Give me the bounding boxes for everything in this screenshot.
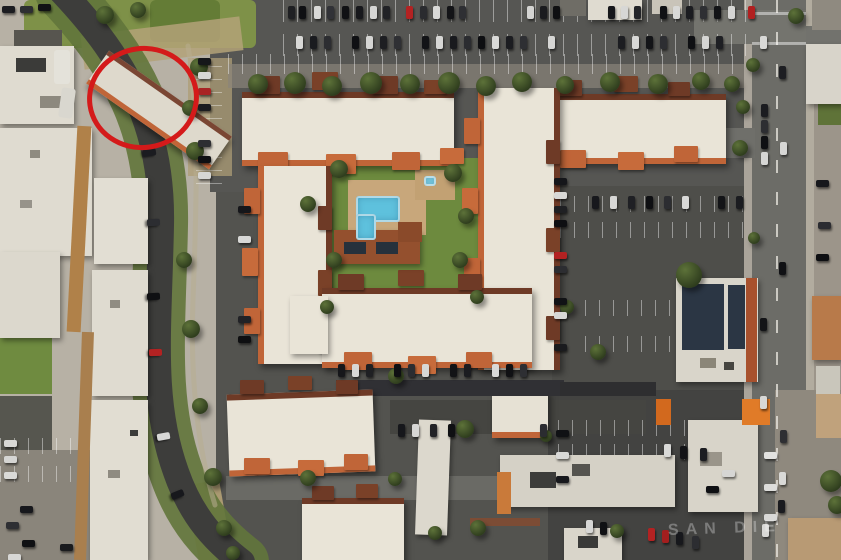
parked-car — [198, 58, 211, 65]
parked-car — [20, 506, 33, 513]
parked-car — [527, 6, 534, 19]
clubhouse-solar-panel — [376, 242, 398, 254]
parked-car — [366, 364, 373, 377]
parked-car — [682, 196, 689, 209]
tile-wing — [546, 140, 560, 164]
parked-car — [448, 424, 455, 437]
parked-car — [556, 430, 569, 437]
rooftop-vent — [30, 150, 40, 158]
tree — [692, 72, 710, 90]
tree — [444, 164, 462, 182]
tree — [556, 76, 574, 94]
parked-car — [314, 6, 321, 19]
parked-car — [20, 6, 33, 13]
parked-car — [383, 6, 390, 19]
parked-car — [761, 120, 768, 133]
parked-car — [492, 364, 499, 377]
parked-car — [198, 156, 211, 163]
tree — [746, 58, 760, 72]
parked-car — [406, 6, 413, 19]
parked-car — [398, 424, 405, 437]
parked-car — [430, 424, 437, 437]
parked-car — [506, 36, 513, 49]
building-far-right-top — [806, 44, 841, 104]
tree — [452, 252, 468, 268]
commercial-building-strip-lower — [90, 400, 148, 560]
parked-car — [198, 172, 211, 179]
tree — [388, 472, 402, 486]
parked-car — [780, 142, 787, 155]
parked-car — [540, 424, 547, 437]
parked-car — [722, 470, 735, 477]
parked-car — [553, 6, 560, 19]
parked-car — [299, 6, 306, 19]
parked-car — [296, 36, 303, 49]
parked-car — [761, 152, 768, 165]
tree — [676, 262, 702, 288]
parking-stalls-row3 — [228, 54, 744, 74]
tree — [438, 72, 460, 94]
parked-car — [4, 440, 17, 447]
parked-car — [818, 222, 831, 229]
tree — [820, 470, 841, 492]
parked-car — [288, 6, 295, 19]
parked-car — [780, 430, 787, 443]
parked-car — [816, 180, 829, 187]
parked-car — [422, 36, 429, 49]
building-far-right-corner — [812, 0, 841, 30]
tree — [590, 344, 606, 360]
aerial-photo: SAN DIE — [0, 0, 841, 560]
parked-car — [760, 396, 767, 409]
rooftop-unit — [578, 536, 598, 548]
parked-car — [554, 312, 567, 319]
parked-car — [60, 544, 73, 551]
parked-car — [779, 472, 786, 485]
parked-car — [554, 178, 567, 185]
parked-car — [554, 344, 567, 351]
tile-wing — [546, 228, 560, 252]
tile-wing — [344, 454, 368, 470]
parked-car — [338, 364, 345, 377]
tree — [456, 420, 474, 438]
tree — [182, 320, 200, 338]
tree — [300, 470, 316, 486]
solar-array-column — [728, 285, 745, 349]
rooftop-vent — [20, 200, 32, 208]
parked-car — [370, 6, 377, 19]
tree — [322, 76, 342, 96]
parked-car — [586, 520, 593, 533]
tree — [216, 520, 232, 536]
parked-car — [736, 196, 743, 209]
parked-car — [646, 36, 653, 49]
parked-car — [408, 364, 415, 377]
house-far-right-mid — [812, 296, 841, 360]
tile-wing — [338, 274, 364, 290]
tree — [458, 208, 474, 224]
street-center-dashes — [776, 0, 778, 560]
parked-car — [728, 6, 735, 19]
parked-car — [554, 206, 567, 213]
tree — [176, 252, 192, 268]
parked-car — [478, 36, 485, 49]
parked-car — [621, 6, 628, 19]
parked-car — [6, 522, 19, 529]
orange-tile-strip-bottom — [497, 472, 511, 514]
parked-car — [688, 36, 695, 49]
parked-car — [352, 36, 359, 49]
rooftop-vent — [130, 430, 138, 436]
parked-car — [610, 196, 617, 209]
rooftop-vent — [110, 300, 120, 308]
tile-wing — [392, 152, 420, 170]
tree — [360, 72, 382, 94]
building-far-right-bottom — [788, 518, 841, 560]
parked-car — [556, 452, 569, 459]
tree — [96, 6, 114, 24]
parked-car — [673, 6, 680, 19]
tile-wing — [336, 380, 358, 394]
parked-car — [680, 446, 687, 459]
parked-car — [592, 196, 599, 209]
rooftop-unit — [724, 362, 734, 370]
parked-car — [433, 6, 440, 19]
house-far-right-small — [816, 366, 840, 394]
parked-car — [554, 192, 567, 199]
parked-car — [718, 196, 725, 209]
parked-car — [716, 36, 723, 49]
parked-car — [714, 6, 721, 19]
parked-car — [450, 36, 457, 49]
parked-car — [464, 36, 471, 49]
parked-car — [554, 220, 567, 227]
parked-car — [342, 6, 349, 19]
rooftop-unit — [572, 464, 590, 476]
tree — [400, 74, 420, 94]
parked-car — [761, 104, 768, 117]
parked-car — [412, 424, 419, 437]
parked-car — [198, 72, 211, 79]
parked-car — [760, 318, 767, 331]
parked-car — [628, 196, 635, 209]
parked-car — [310, 36, 317, 49]
tree — [204, 468, 222, 486]
tree — [476, 76, 496, 96]
rooftop-unit — [700, 358, 716, 368]
parked-car — [664, 196, 671, 209]
parked-car — [648, 528, 655, 541]
tree — [284, 72, 306, 94]
tile-wing — [288, 376, 312, 390]
tree — [226, 546, 240, 560]
parked-car — [660, 6, 667, 19]
tile-wing — [398, 270, 424, 286]
parked-car — [556, 476, 569, 483]
parked-car — [760, 36, 767, 49]
parked-car — [548, 36, 555, 49]
rooftop-unit — [530, 472, 556, 488]
tree — [512, 72, 532, 92]
building-top-right-b — [560, 0, 586, 16]
building-far-right-lower — [816, 394, 841, 438]
tile-wing — [546, 316, 560, 340]
tree — [648, 74, 668, 94]
tile-wing — [240, 380, 264, 394]
parked-car — [238, 206, 251, 213]
parked-car — [8, 554, 21, 560]
parked-car — [4, 456, 17, 463]
solar-array-main — [682, 284, 724, 350]
canopy-nw — [14, 30, 62, 46]
orange-awning — [656, 399, 671, 425]
white-building-bottom-mid — [500, 455, 675, 507]
tile-wing — [318, 206, 332, 230]
parked-car — [540, 6, 547, 19]
tile-wing — [560, 150, 586, 168]
parked-car — [238, 236, 251, 243]
parked-car — [702, 36, 709, 49]
tile-wing — [244, 458, 270, 474]
parked-car — [464, 364, 471, 377]
parked-car — [761, 136, 768, 149]
parked-car — [700, 448, 707, 461]
parked-car — [660, 36, 667, 49]
parked-car — [664, 444, 671, 457]
parked-car — [327, 6, 334, 19]
parked-car — [506, 364, 513, 377]
parked-car — [198, 104, 211, 111]
parked-car — [520, 36, 527, 49]
parked-car — [447, 6, 454, 19]
parked-car — [748, 6, 755, 19]
tree — [300, 196, 316, 212]
parked-car — [394, 36, 401, 49]
rv-vehicle — [54, 50, 70, 84]
parked-car — [147, 293, 160, 301]
commercial-building-west-b — [0, 252, 60, 338]
spa-tub — [424, 176, 436, 186]
parked-car — [149, 349, 162, 356]
tile-wing — [458, 274, 482, 290]
tree — [788, 8, 804, 24]
tile-wing — [668, 82, 690, 96]
parked-car — [198, 140, 211, 147]
parked-car — [324, 36, 331, 49]
tree — [732, 140, 748, 156]
parked-car — [554, 252, 567, 259]
parked-car — [764, 484, 777, 491]
parked-car — [38, 4, 51, 11]
tile-wing — [356, 484, 378, 498]
parked-car — [778, 500, 785, 513]
tree — [428, 526, 442, 540]
parked-car — [147, 219, 160, 227]
solar-building-tile-edge — [746, 278, 757, 382]
clubhouse-wing — [398, 222, 422, 242]
parked-car — [198, 88, 211, 95]
tree — [248, 74, 268, 94]
tree — [470, 290, 484, 304]
parked-car — [608, 6, 615, 19]
tree — [610, 524, 624, 538]
tree — [330, 160, 348, 178]
tree — [320, 300, 334, 314]
tree — [130, 2, 146, 18]
parked-car — [2, 6, 15, 13]
clubhouse-solar-panel — [344, 242, 366, 254]
tree — [828, 496, 841, 514]
commercial-building-strip-upper — [94, 178, 148, 264]
parked-car — [706, 486, 719, 493]
parked-car — [420, 6, 427, 19]
parked-car — [554, 298, 567, 305]
parked-car — [394, 364, 401, 377]
tile-wing — [618, 152, 644, 170]
parked-car — [356, 6, 363, 19]
parked-car — [366, 36, 373, 49]
parked-car — [779, 262, 786, 275]
parked-car — [380, 36, 387, 49]
parked-car — [4, 472, 17, 479]
parked-car — [618, 36, 625, 49]
tile-wing — [440, 148, 464, 164]
parked-car — [600, 522, 607, 535]
parked-car — [816, 254, 829, 261]
parked-car — [646, 196, 653, 209]
rooftop-unit — [16, 58, 46, 72]
white-building-bottom-right — [688, 420, 758, 512]
parked-car — [520, 364, 527, 377]
parked-car — [22, 540, 35, 547]
parked-car — [459, 6, 466, 19]
parked-car — [764, 452, 777, 459]
parked-car — [700, 6, 707, 19]
tree — [470, 520, 486, 536]
parked-car — [686, 6, 693, 19]
parked-car — [492, 36, 499, 49]
parked-car — [632, 36, 639, 49]
tree — [600, 72, 620, 92]
tree — [326, 252, 342, 268]
tile-wing — [464, 118, 480, 144]
parked-car — [436, 36, 443, 49]
parked-car — [238, 316, 251, 323]
parked-car — [238, 336, 251, 343]
parking-stalls-row1 — [283, 0, 755, 22]
tree — [748, 232, 760, 244]
parked-car — [450, 364, 457, 377]
carport-row-right — [560, 382, 656, 396]
tree — [724, 76, 740, 92]
parked-car — [634, 6, 641, 19]
tile-wing — [242, 248, 258, 276]
tile-wing — [674, 146, 698, 162]
tile-wing — [312, 486, 334, 500]
commercial-building-strip-mid — [92, 270, 148, 396]
parking-stalls-right-b — [560, 222, 750, 238]
rooftop-vent — [108, 470, 120, 478]
parked-car — [352, 364, 359, 377]
parked-car — [779, 66, 786, 79]
tree — [192, 398, 208, 414]
tree — [736, 100, 750, 114]
parked-car — [422, 364, 429, 377]
parked-car — [554, 266, 567, 273]
apartment-building-south-center — [302, 498, 404, 560]
swimming-pool-arm — [356, 214, 376, 240]
